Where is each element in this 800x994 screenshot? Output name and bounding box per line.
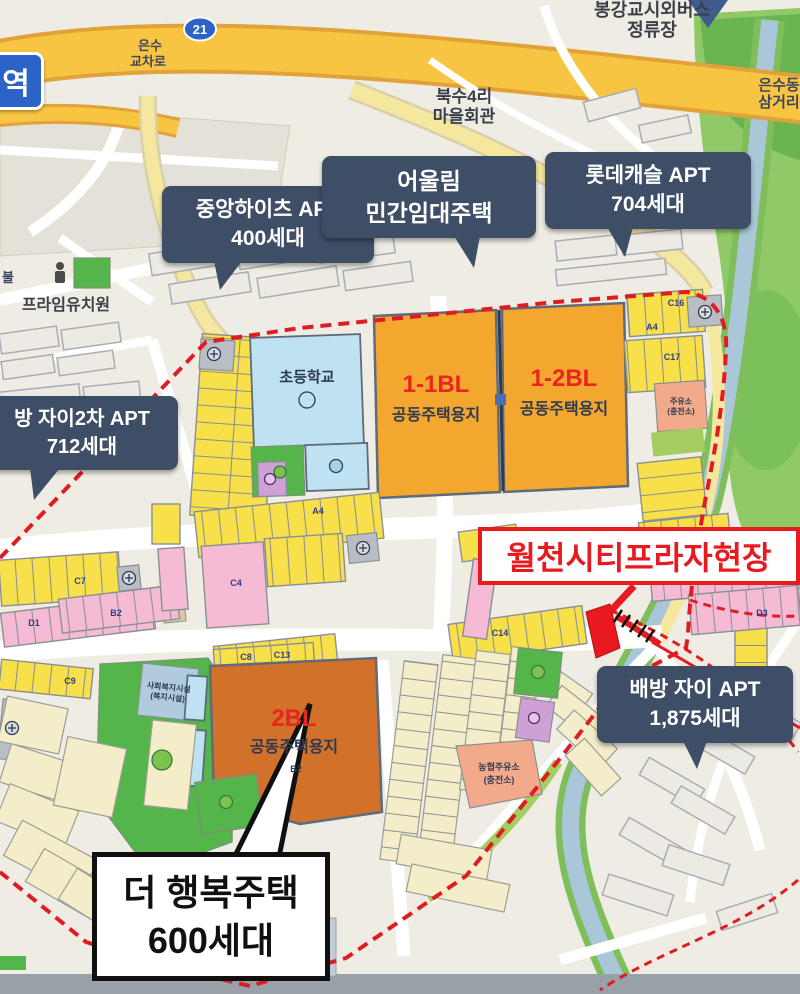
station-sign: 역 — [0, 52, 44, 110]
callout-tail — [683, 741, 707, 769]
parking-icon — [529, 713, 540, 724]
parcel-code-label: C8 — [240, 652, 252, 662]
callout-line1: 롯데캐슬 APT — [553, 161, 743, 190]
bus-stop-label-2: 정류장 — [627, 20, 677, 40]
callout-eoullim: 어울림 민간임대주택 — [322, 156, 536, 238]
callout-line2: 704세대 — [553, 190, 743, 219]
parcel-code-label: A4 — [312, 506, 324, 516]
parcel-code-label: C7 — [74, 576, 86, 586]
callout-tail — [607, 227, 633, 257]
parcel-code-label: B2 — [110, 608, 122, 618]
station-sign-text: 역 — [2, 59, 30, 103]
happy-house-line2: 600세대 — [99, 917, 323, 965]
callout-line1: 방 자이2차 APT — [0, 405, 170, 433]
block-1-1BL — [374, 310, 500, 498]
block-1-2-use: 공동주택용지 — [520, 400, 608, 418]
parking-icon — [265, 474, 276, 485]
facility-icon — [357, 542, 370, 555]
block-1-1-use: 공동주택용지 — [392, 406, 480, 424]
parcel-code-label: C4 — [230, 578, 242, 588]
callout-line2: 1,875세대 — [605, 704, 785, 733]
block-2-sub: B2 — [290, 764, 302, 774]
kindergarten-green — [74, 258, 110, 288]
parcel-code-label: C16 — [668, 298, 685, 308]
parcel-code-label: D3 — [756, 608, 768, 618]
eunsu-ic-label-2: 교차로 — [130, 54, 166, 69]
buksu-label-2: 마을회관 — [433, 107, 496, 126]
block-1-2BL — [502, 303, 628, 492]
parcel-code-label: C14 — [492, 628, 509, 638]
site-banner: 월천시티프라자현장 — [478, 527, 800, 585]
tree-icon — [532, 666, 545, 679]
facility-icon — [6, 722, 19, 735]
tree-icon — [220, 796, 233, 809]
site-banner-text: 월천시티프라자현장 — [507, 533, 772, 579]
facility-icon — [699, 306, 712, 319]
gas-east-label-2: (충전소) — [667, 406, 695, 416]
tree-icon — [152, 750, 172, 770]
facility-icon — [123, 572, 136, 585]
callout-line1: 배방 자이 APT — [605, 675, 785, 704]
samgeori-label-1: 은수동 — [758, 77, 800, 94]
callout-baebang-xi-2cha: 방 자이2차 APT 712세대 — [0, 396, 178, 470]
tree-icon — [330, 460, 343, 473]
kindergarten-icon — [55, 262, 65, 283]
gas-east-label-1: 주유소 — [670, 397, 693, 406]
callout-tail — [454, 236, 480, 268]
callout-tail — [30, 468, 60, 500]
parcel-code-label: C17 — [664, 352, 681, 362]
callout-line2: 712세대 — [0, 433, 170, 461]
block-1-1-code: 1-1BL — [403, 371, 470, 398]
block-2-code: 2BL — [271, 705, 316, 732]
route-shield-icon: 21 — [184, 18, 216, 41]
callout-line1: 어울림 — [330, 165, 528, 197]
parcel-code-label: C9 — [64, 676, 76, 686]
facility-icon — [208, 348, 221, 361]
base-map-svg: 21 은수 교차로 은수동 삼거리 북수4리 마을회관 봉강교시외버스 정류장 … — [0, 0, 800, 994]
gas-south-label-1: 농협주유소 — [478, 761, 520, 772]
eunsu-ic-label-1: 은수 — [138, 38, 162, 53]
map-canvas: 21 은수 교차로 은수동 삼거리 북수4리 마을회관 봉강교시외버스 정류장 … — [0, 0, 800, 994]
block-1-2-code: 1-2BL — [531, 365, 598, 392]
bus-stop-label-1: 봉강교시외버스 — [594, 0, 710, 20]
happy-house-line1: 더 행복주택 — [99, 869, 323, 917]
samgeori-label-2: 삼거리 — [758, 94, 799, 111]
callout-line2: 민간임대주택 — [330, 197, 528, 229]
buksu-label-1: 북수4리 — [436, 87, 492, 106]
gas-south-label-2: (충전소) — [484, 774, 515, 785]
callout-lotte-castle: 롯데캐슬 APT 704세대 — [545, 152, 751, 229]
parcel-code-label: A4 — [646, 322, 658, 332]
green-patch — [0, 956, 26, 970]
route-shield-number: 21 — [193, 22, 207, 37]
happy-house-callout: 더 행복주택 600세대 — [92, 852, 330, 981]
kindergarten-label: 프라임유치원 — [22, 296, 110, 314]
cut-label: 불 — [2, 270, 14, 285]
tree-icon — [274, 466, 286, 478]
school-label: 초등학교 — [279, 369, 334, 386]
callout-baebang-xi: 배방 자이 APT 1,875세대 — [597, 666, 793, 743]
block-2-use: 공동주택용지 — [250, 738, 338, 756]
school-parcel — [250, 334, 364, 448]
parcel-code-label: D1 — [28, 618, 40, 628]
parcel-code-label: C13 — [274, 650, 291, 660]
callout-tail — [214, 261, 242, 290]
